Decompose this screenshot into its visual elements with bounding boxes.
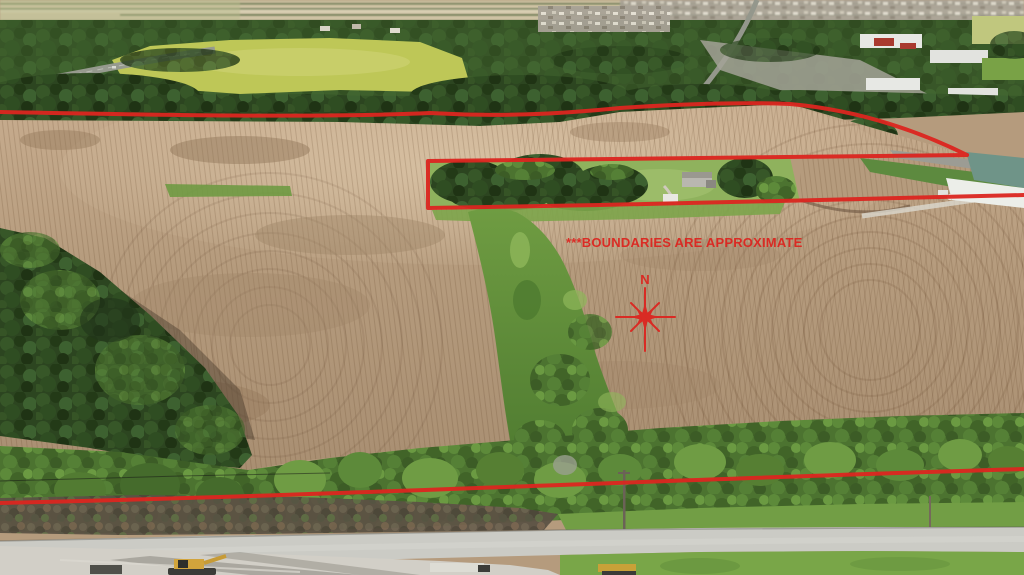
soil-patch — [20, 130, 100, 150]
dead-tree — [553, 455, 577, 475]
warehouse — [866, 78, 920, 90]
green-lot — [982, 58, 1024, 80]
utility-pole-crossarm — [618, 472, 630, 474]
house-roof-shade — [682, 172, 712, 178]
utility-pole — [623, 470, 626, 536]
warehouse — [930, 50, 988, 63]
machine — [598, 564, 636, 572]
soil-patch — [170, 136, 310, 164]
house-roof — [320, 26, 330, 31]
utility-pole — [929, 496, 931, 528]
boundaries-approximate-note: ***BOUNDARIES ARE APPROXIMATE — [566, 235, 803, 250]
distant-town-houses — [620, 0, 1024, 21]
machine-tracks — [602, 571, 636, 575]
shed — [663, 194, 678, 202]
trailer — [430, 563, 484, 572]
house-roof — [352, 24, 361, 29]
soil-patch — [570, 122, 670, 142]
soil-patch — [255, 215, 445, 255]
grass-mottle — [660, 558, 740, 574]
red-roof-building — [874, 38, 894, 46]
grass-strip — [165, 184, 292, 197]
garage — [706, 180, 716, 188]
houses-cluster — [538, 6, 670, 32]
grass-mottle — [850, 557, 950, 571]
house-roof — [390, 28, 400, 33]
machine — [90, 565, 122, 574]
red-roof-building — [900, 43, 916, 49]
distant-fields-left — [0, 0, 240, 22]
compass-north-label: N — [640, 272, 649, 287]
aerial-photo: ***BOUNDARIES ARE APPROXIMATE N — [0, 0, 1024, 575]
aerial-photo-scene: ***BOUNDARIES ARE APPROXIMATE N — [0, 0, 1024, 575]
vehicle-dot — [112, 66, 116, 69]
trailer-cab — [478, 565, 490, 572]
